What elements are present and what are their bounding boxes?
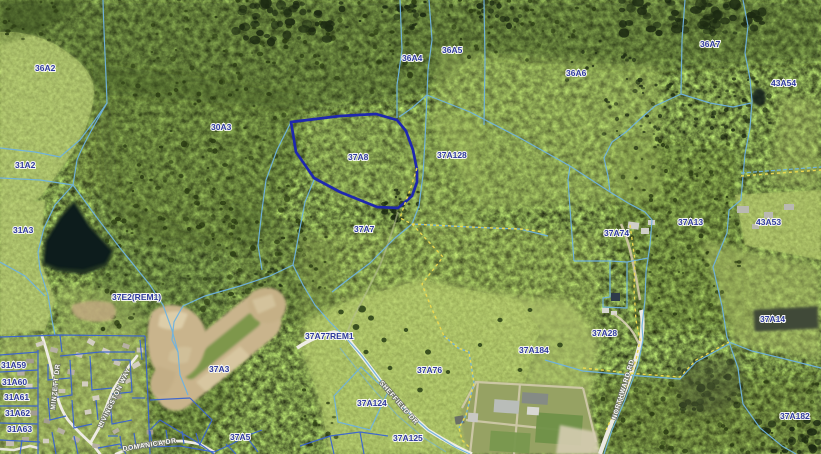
svg-text:31A3: 31A3 [13, 225, 34, 235]
svg-text:36A7: 36A7 [700, 39, 721, 49]
svg-text:37A28: 37A28 [592, 328, 617, 338]
svg-text:31A60: 31A60 [2, 377, 27, 387]
svg-text:30A3: 30A3 [211, 122, 232, 132]
svg-text:36A4: 36A4 [402, 53, 423, 63]
svg-text:37A124: 37A124 [357, 398, 387, 408]
svg-text:36A6: 36A6 [566, 68, 587, 78]
svg-text:36A2: 36A2 [35, 63, 56, 73]
svg-text:37A182: 37A182 [780, 411, 810, 421]
svg-text:37A13: 37A13 [678, 217, 703, 227]
svg-text:37A128: 37A128 [437, 150, 467, 160]
svg-text:37A77REM1: 37A77REM1 [305, 331, 354, 341]
svg-text:31A62: 31A62 [5, 408, 30, 418]
svg-text:31A2: 31A2 [15, 160, 36, 170]
svg-text:31A61: 31A61 [4, 392, 29, 402]
svg-text:37A76: 37A76 [417, 365, 442, 375]
svg-text:37A3: 37A3 [209, 364, 230, 374]
svg-text:37A125: 37A125 [393, 433, 423, 443]
svg-text:37A184: 37A184 [519, 345, 549, 355]
svg-text:31A63: 31A63 [7, 424, 32, 434]
svg-text:43A53: 43A53 [756, 217, 781, 227]
svg-text:37A74: 37A74 [604, 228, 629, 238]
svg-text:37A5: 37A5 [230, 432, 251, 442]
svg-text:31A59: 31A59 [1, 360, 26, 370]
svg-text:37A8: 37A8 [348, 152, 369, 162]
svg-text:37A7: 37A7 [354, 224, 375, 234]
svg-text:43A54: 43A54 [771, 78, 796, 88]
svg-text:37E2(REM1): 37E2(REM1) [112, 292, 161, 302]
svg-text:36A5: 36A5 [442, 45, 463, 55]
svg-text:37A14: 37A14 [760, 314, 785, 324]
